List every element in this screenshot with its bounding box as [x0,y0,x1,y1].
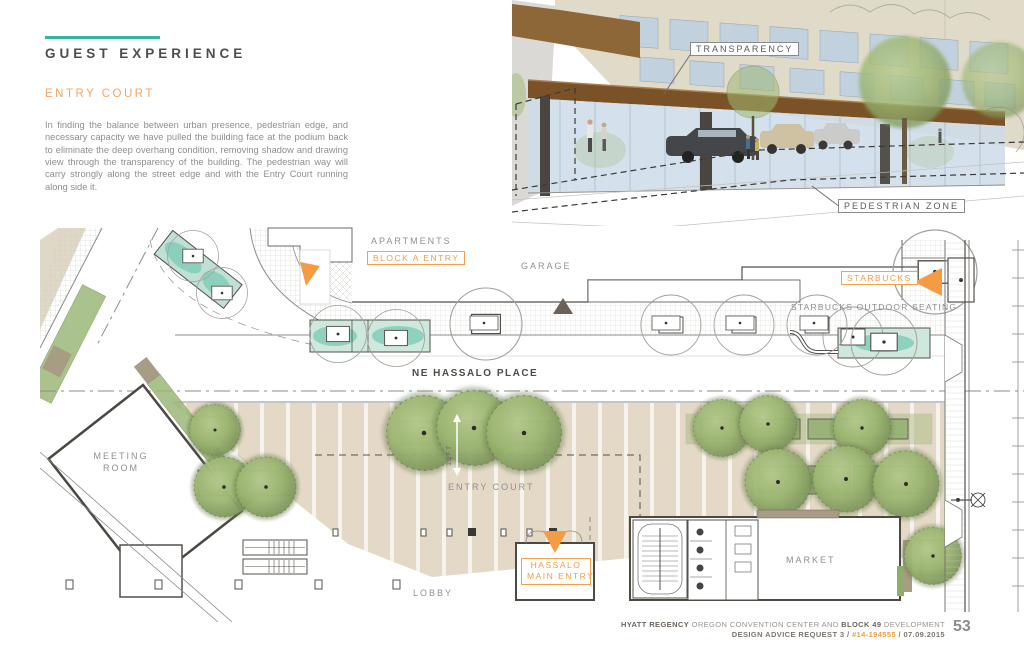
page-title: GUEST EXPERIENCE [45,46,246,61]
body-paragraph: In finding the balance between urban pre… [45,119,348,193]
footer-hotel-name: HYATT REGENCY [621,620,689,629]
apartments-label: APARTMENTS [371,236,452,246]
footer-project-suffix: DEVELOPMENT [881,620,945,629]
plan-market-building [630,510,912,600]
footer-project-rest: OREGON CONVENTION CENTER AND [689,620,841,629]
tree-spacing-dimension-label: 12FT [444,444,453,466]
footer-line2: DESIGN ADVICE REQUEST 3 / #14-194555 / 0… [621,630,945,640]
lobby-label: LOBBY [413,588,453,598]
transparency-label-text: TRANSPARENCY [696,44,793,54]
footer-block-name: BLOCK 49 [841,620,881,629]
meeting-room-label-line2: ROOM [85,462,157,474]
footer-line1: HYATT REGENCY OREGON CONVENTION CENTER A… [621,620,945,630]
pedestrian-zone-label: PEDESTRIAN ZONE [838,199,965,213]
hassalo-entry-line2: MAIN ENTRY [527,571,585,582]
block-a-entry-label-text: BLOCK A ENTRY [373,253,459,263]
meeting-room-label: MEETING ROOM [85,450,157,474]
block-a-entry-label: BLOCK A ENTRY [367,251,465,265]
street-name-label: NE HASSALO PLACE [412,368,538,379]
entry-court-label: ENTRY COURT [448,482,535,492]
teal-accent-rule [45,36,160,39]
page-number: 53 [953,618,971,636]
subsection-title: ENTRY COURT [45,88,155,100]
plan-center-trees [383,387,566,476]
footer-case-number: #14-194555 [852,630,896,639]
footer-project-info: HYATT REGENCY OREGON CONVENTION CENTER A… [621,620,945,640]
footer-submission: DESIGN ADVICE REQUEST 3 / [732,630,852,639]
market-label: MARKET [786,555,836,565]
starbucks-label-text: STARBUCKS [847,273,912,283]
starbucks-seating-label: STARBUCKS OUTDOOR SEATING [791,302,957,312]
footer-date: / 07.09.2015 [896,630,945,639]
garage-label: GARAGE [521,261,572,271]
starbucks-label: STARBUCKS [841,271,918,285]
presentation-page: GUEST EXPERIENCE ENTRY COURT In finding … [0,0,1024,663]
transparency-label: TRANSPARENCY [690,42,799,56]
meeting-room-label-line1: MEETING [85,450,157,462]
hassalo-main-entry-label: HASSALO MAIN ENTRY [521,558,591,585]
hassalo-entry-line1: HASSALO [527,560,585,571]
pedestrian-zone-label-text: PEDESTRIAN ZONE [844,201,959,211]
